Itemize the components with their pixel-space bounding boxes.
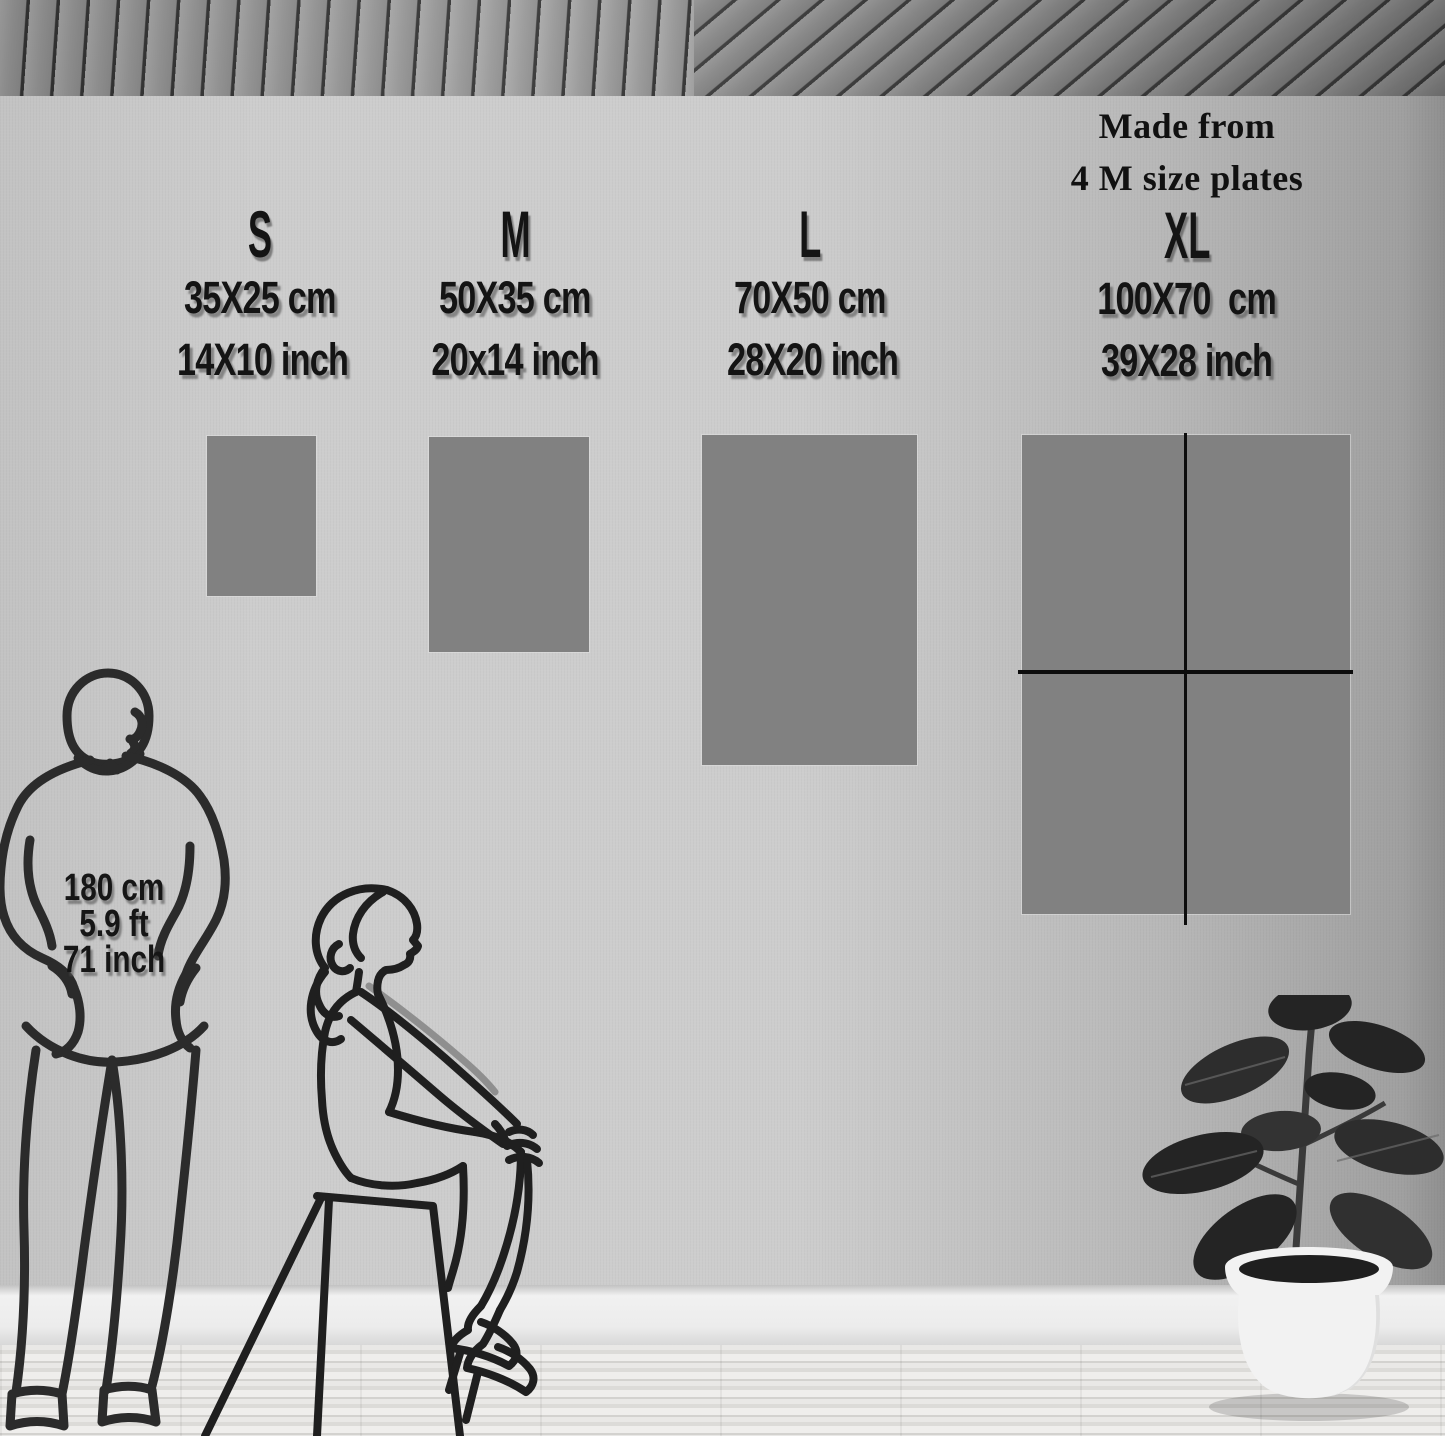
man-right-cuff [102,1386,156,1422]
size-swatch-m [429,437,589,652]
size-inch-l: 28X20 inch [700,337,920,383]
height-inch: 71 inch [52,942,177,978]
size-letter-xl: XL [1164,206,1210,264]
woman-back-leg [500,1160,529,1310]
size-inch-s: 14X10 inch [150,337,370,383]
height-cm: 180 cm [52,870,177,906]
size-column-xl: Made from 4 M size plates XL 100X70 cm 3… [1032,100,1342,384]
woman-hairline [353,892,383,958]
size-chart-scene: { "scene_title": "Poster size comparison… [0,0,1445,1436]
plant-pot-soil [1239,1255,1379,1283]
man-left-cuff [10,1390,64,1426]
xl-note-line-1: Made from [1032,100,1342,152]
woman-hip [351,1166,463,1186]
size-column-l: L 70X50 cm 28X20 inch [700,205,920,383]
height-ft: 5.9 ft [52,906,177,942]
wood-slat-ceiling [0,0,1445,99]
size-letter-s: S [248,205,272,263]
size-letter-l: L [799,205,821,263]
xl-note-line-2: 4 M size plates [1032,152,1342,204]
size-cm-l: 70X50 cm [700,275,920,321]
size-swatch-s [207,436,316,596]
stool [205,1196,460,1436]
xl-plate-divider-vertical [1184,433,1187,925]
size-inch-m: 20x14 inch [405,337,625,383]
man-left-leg-outer [16,1050,36,1392]
size-letter-m: M [500,205,530,263]
person-height-label: 180 cm 5.9 ft 71 inch [34,870,194,978]
potted-plant [1085,995,1445,1436]
woman-face [378,890,418,981]
woman-figure [200,880,560,1436]
size-inch-xl: 39X28 inch [1032,338,1342,384]
woman-arm-shadow [369,986,495,1092]
size-swatch-l [702,435,917,765]
size-column-s: S 35X25 cm 14X10 inch [150,205,370,383]
size-column-m: M 50X35 cm 20x14 inch [405,205,625,383]
man-left-leg-inner [62,1060,112,1394]
size-cm-xl: 100X70 cm [1032,276,1342,322]
woman-calf [448,1166,464,1288]
size-cm-s: 35X25 cm [150,275,370,321]
size-cm-m: 50X35 cm [405,275,625,321]
ceiling-shading [0,0,1445,96]
xl-plate-divider-horizontal [1018,670,1353,674]
man-right-leg-outer [152,1050,196,1386]
woman-hair-bun [331,944,350,971]
